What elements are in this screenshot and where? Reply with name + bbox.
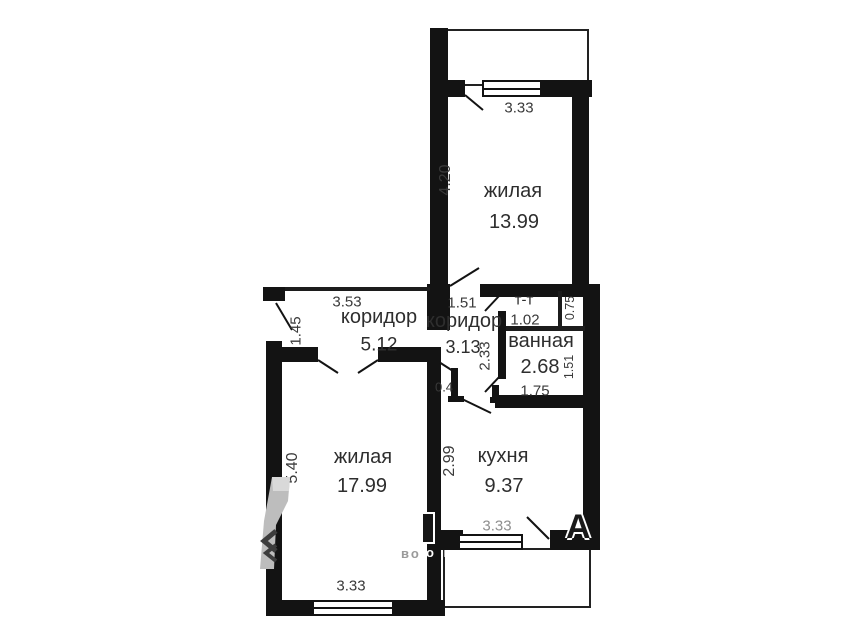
- watermark-text: о недвижимости: [426, 545, 575, 560]
- room-bath-area: 2.68: [521, 357, 560, 377]
- dim-hall1-width: 3.53: [332, 295, 361, 310]
- wall: [448, 396, 464, 402]
- wall: [498, 331, 506, 379]
- window: [312, 600, 394, 616]
- dim-hall2-height: 2.33: [478, 341, 493, 370]
- dim-kitchen-width: 3.33: [482, 519, 511, 534]
- dim-living1-width: 3.33: [504, 101, 533, 116]
- door-swing: [465, 95, 483, 110]
- dim-entry-height: 1.45: [289, 316, 304, 345]
- wall: [263, 287, 285, 301]
- dim-wc-width: 1.02: [510, 313, 539, 328]
- watermark-letter-fragment: [421, 512, 435, 544]
- wall: [283, 287, 430, 291]
- dim-hall2-width: 1.51: [447, 296, 476, 311]
- dim-wall-stub: 0.4: [435, 381, 453, 394]
- dim-bath-height: 1.51: [563, 355, 576, 379]
- door-swing: [358, 360, 378, 373]
- dim-bath-width: 1.75: [520, 384, 549, 399]
- room-living2-area: 17.99: [337, 476, 387, 496]
- door-swing: [527, 517, 549, 539]
- dim-living1-height: 4.20: [438, 164, 454, 195]
- wall: [572, 80, 589, 290]
- room-hall2-area: 3.13: [445, 338, 480, 356]
- dim-living2-width: 3.33: [336, 579, 365, 594]
- room-hall2-label: коридор: [426, 311, 502, 331]
- room-bath-label: ванная: [508, 331, 574, 351]
- wall: [490, 397, 515, 403]
- window: [482, 80, 542, 97]
- door-swing: [450, 268, 479, 286]
- room-hall1-area: 5.12: [361, 336, 398, 355]
- wall: [443, 80, 465, 97]
- wall: [558, 291, 562, 328]
- door-swing: [462, 399, 491, 413]
- room-wc-label: т-т: [515, 293, 534, 308]
- door-swing: [318, 360, 338, 373]
- floor-plan: жилая 13.99 коридор 5.12 коридор 3.13 т-…: [0, 0, 863, 643]
- room-kitchen-label: кухня: [478, 446, 529, 466]
- room-living2-label: жилая: [334, 447, 392, 467]
- room-kitchen-area: 9.37: [485, 476, 524, 496]
- watermark-letter: А: [566, 508, 591, 547]
- door-swing: [485, 296, 499, 311]
- dim-kitchen-height: 2.99: [442, 445, 458, 476]
- wall: [266, 347, 318, 362]
- agency-logo-watermark: [254, 477, 294, 569]
- balcony-top: [434, 29, 589, 86]
- room-living1-area: 13.99: [489, 212, 539, 232]
- watermark-text-fragment: во: [401, 546, 421, 561]
- room-living1-label: жилая: [484, 181, 542, 201]
- dim-shaft-height: 0.75: [564, 296, 577, 320]
